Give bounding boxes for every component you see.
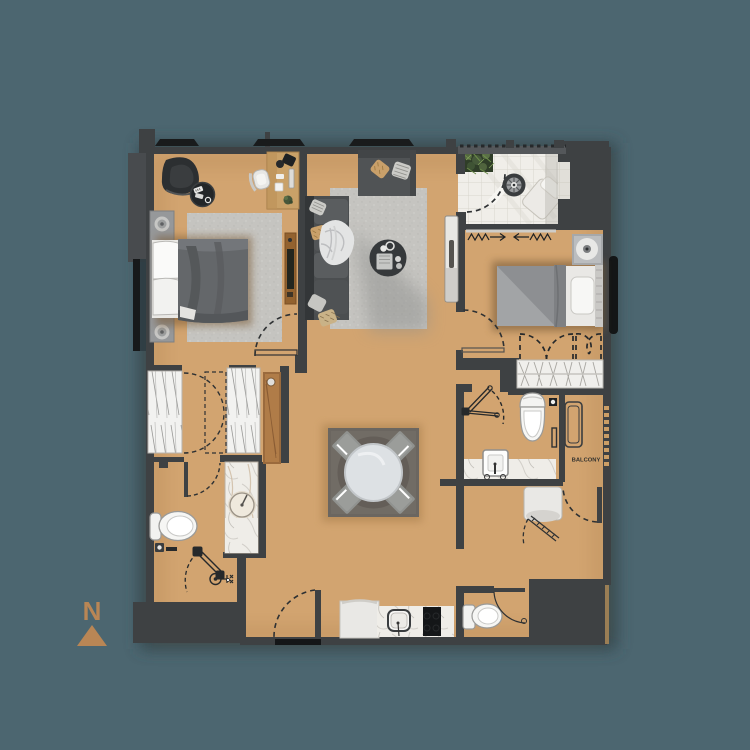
svg-text:BALCONY: BALCONY [572, 458, 601, 464]
svg-text:N: N [83, 596, 102, 626]
